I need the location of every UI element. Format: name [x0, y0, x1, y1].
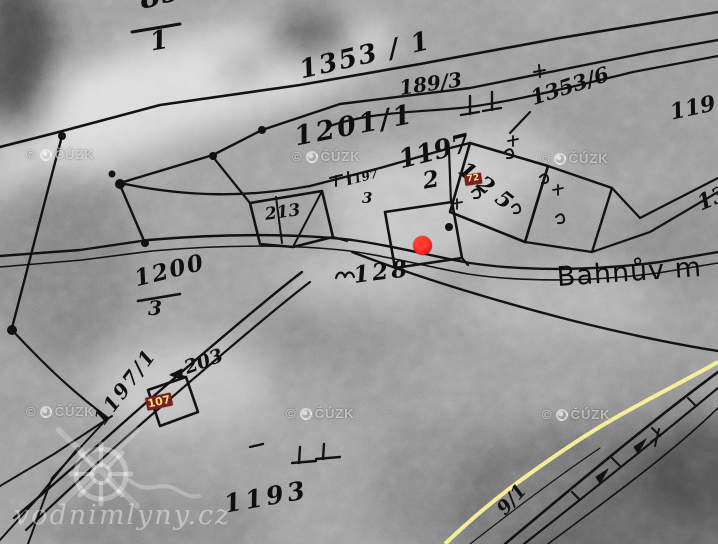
cadastral-map-canvas[interactable]: 85 1 1353 / 1 189/3 1353/6 1201/1 1197 2…	[0, 0, 718, 544]
site-watermark-text: vodnimlyny.cz	[14, 500, 231, 531]
mill-wheel-watermark-icon	[0, 0, 718, 544]
selected-point-marker[interactable]	[413, 236, 432, 255]
